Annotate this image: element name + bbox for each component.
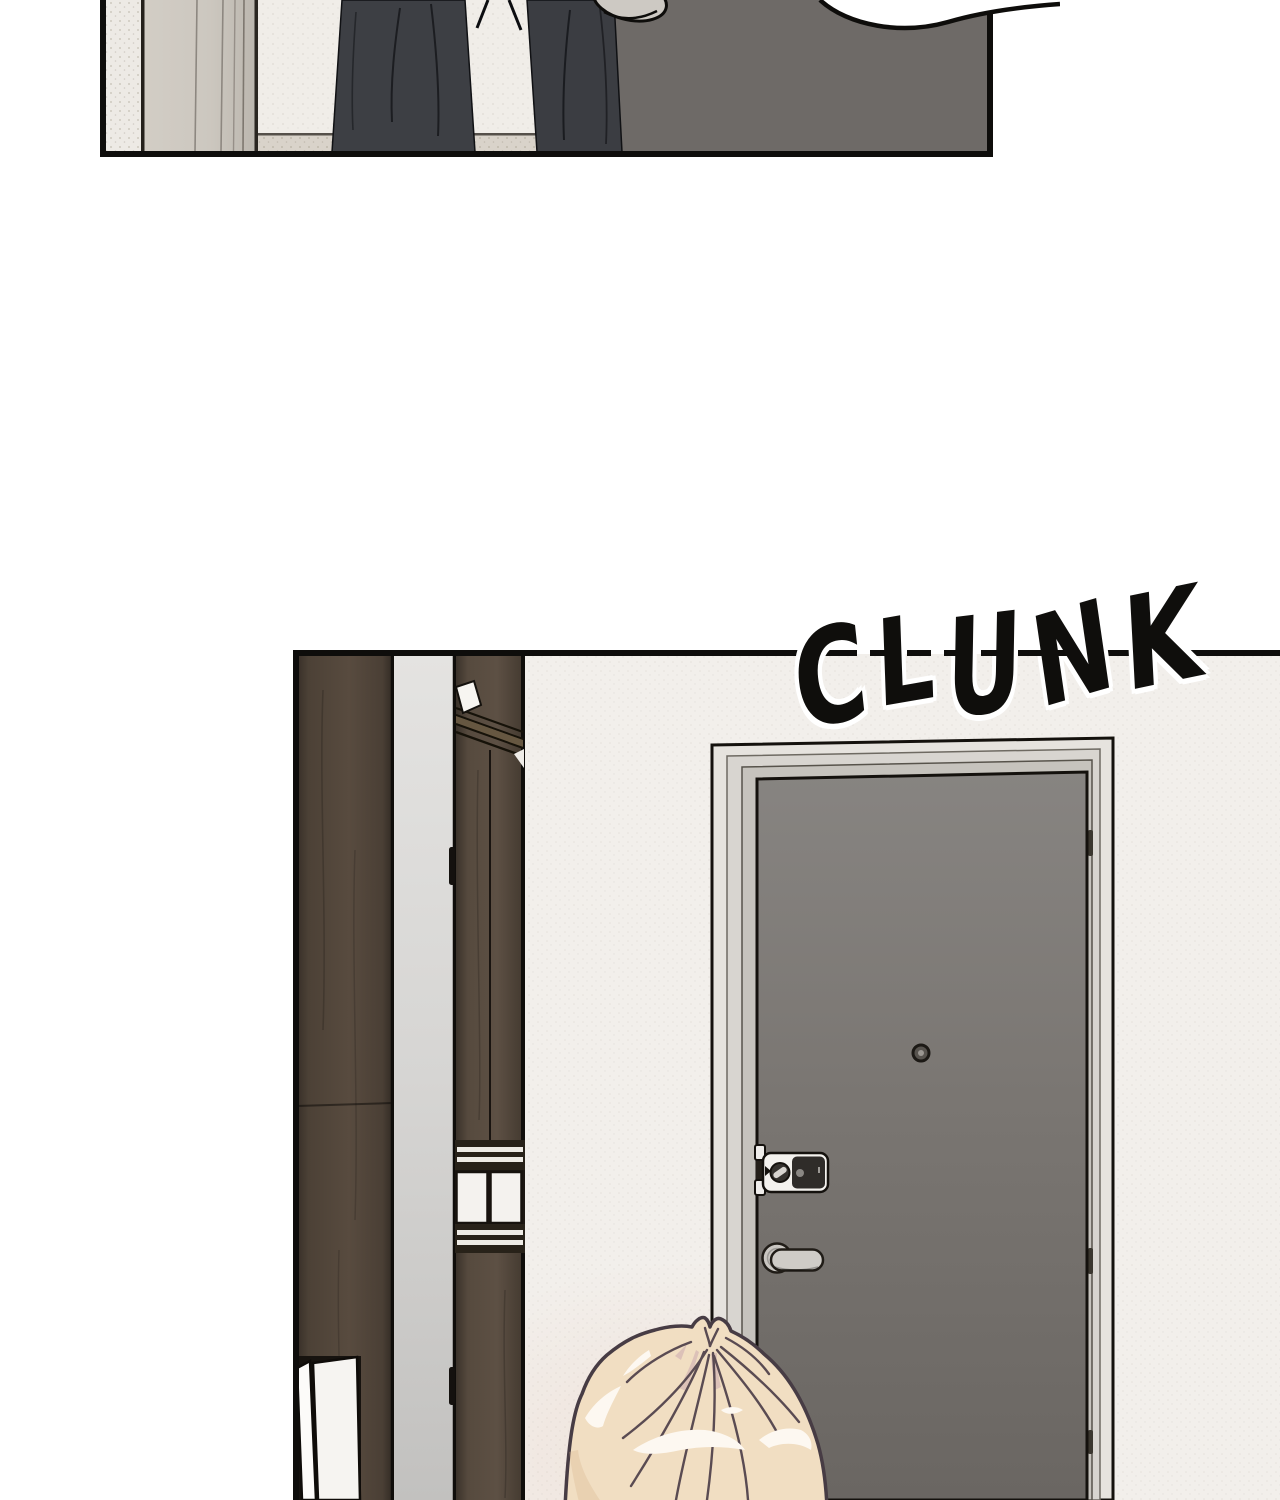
paneled-door-edge: [145, 0, 255, 152]
white-open-door-panels: [295, 1356, 361, 1500]
door-edge-line: [255, 0, 259, 152]
wooden-wardrobe: [295, 654, 525, 1500]
drawer-face: [491, 1172, 522, 1223]
hallway-wall: [104, 0, 142, 152]
peephole: [913, 1045, 929, 1061]
entrance-door: [755, 772, 1087, 1500]
wardrobe-mirror-strip: [394, 654, 454, 1500]
frame-shadow-mark: [1088, 1248, 1093, 1274]
frame-shadow-mark: [1088, 1430, 1093, 1454]
drawer-face: [457, 1172, 488, 1223]
digital-door-lock: [755, 1145, 828, 1195]
speech-bubble-partial: [818, 0, 1060, 42]
wall-corner-line: [141, 0, 145, 152]
thumbturn-knob: [771, 1163, 790, 1182]
panel-border-dashed-segment: [833, 650, 1070, 662]
wardrobe-handle-groove: [449, 1367, 455, 1405]
comic-page: { "page": { "kind": "webtoon comic page"…: [0, 0, 1280, 1500]
wardrobe-vent-drawers: [455, 1140, 525, 1253]
panel-2: [293, 650, 1280, 1500]
wardrobe-handle-groove: [449, 847, 455, 885]
frame-shadow-mark: [1088, 830, 1093, 856]
